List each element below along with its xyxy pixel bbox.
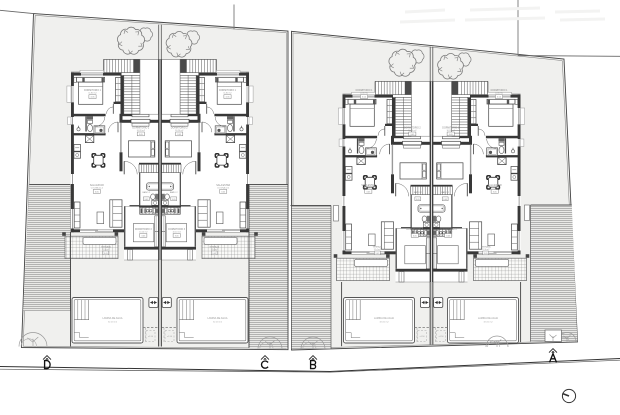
svg-text:12.4 m2: 12.4 m2 <box>374 249 382 251</box>
svg-text:SALA ESTAR: SALA ESTAR <box>90 184 104 187</box>
svg-text:±1.50: ±1.50 <box>167 336 173 338</box>
svg-text:10.10 m2: 10.10 m2 <box>139 231 148 233</box>
svg-text:10.20 m2: 10.20 m2 <box>447 130 456 132</box>
svg-text:COCINA 22.4: COCINA 22.4 <box>217 186 230 189</box>
svg-text:TERRAZA: TERRAZA <box>209 245 219 248</box>
svg-text:SALA ESTAR: SALA ESTAR <box>488 184 502 187</box>
svg-text:10.20 m2: 10.20 m2 <box>175 130 184 132</box>
svg-text:LAMINA DE AGUA: LAMINA DE AGUA <box>478 317 498 320</box>
svg-text:BAÑO 2: BAÑO 2 <box>441 191 449 194</box>
svg-text:12.4 m2: 12.4 m2 <box>211 249 219 251</box>
svg-text:TERRAZA: TERRAZA <box>481 245 491 248</box>
svg-text:32.00 m2: 32.00 m2 <box>213 322 223 324</box>
svg-text:10.10 m2: 10.10 m2 <box>173 231 182 233</box>
svg-text:32.00 m2: 32.00 m2 <box>483 322 493 324</box>
svg-text:11.80 m2: 11.80 m2 <box>223 93 232 95</box>
svg-text:COCINA 22.4: COCINA 22.4 <box>91 186 104 189</box>
svg-text:LAMINA DE AGUA: LAMINA DE AGUA <box>102 317 122 320</box>
svg-text:BAÑO 2: BAÑO 2 <box>414 191 422 194</box>
svg-text:±1.50: ±1.50 <box>148 336 154 338</box>
svg-text:TERRAZA: TERRAZA <box>101 245 111 248</box>
svg-text:12.4 m2: 12.4 m2 <box>102 249 110 251</box>
svg-text:BAÑO 2: BAÑO 2 <box>170 191 178 194</box>
svg-text:10.10 m2: 10.10 m2 <box>444 231 453 233</box>
svg-text:32.00 m2: 32.00 m2 <box>108 322 118 324</box>
svg-text:12.4 m2: 12.4 m2 <box>482 249 490 251</box>
svg-text:11.80 m2: 11.80 m2 <box>495 93 504 95</box>
svg-text:10.20 m2: 10.20 m2 <box>137 130 146 132</box>
svg-text:SALA ESTAR: SALA ESTAR <box>216 184 230 187</box>
svg-text:11.80 m2: 11.80 m2 <box>88 93 97 95</box>
svg-text:COCINA 22.4: COCINA 22.4 <box>362 186 375 189</box>
svg-text:TERRAZA: TERRAZA <box>372 245 382 248</box>
svg-text:32.00 m2: 32.00 m2 <box>379 322 389 324</box>
svg-text:±1.50: ±1.50 <box>420 336 426 338</box>
svg-text:10.20 m2: 10.20 m2 <box>408 130 417 132</box>
svg-text:LAMINA DE AGUA: LAMINA DE AGUA <box>207 317 227 320</box>
svg-text:SALA ESTAR: SALA ESTAR <box>361 184 375 187</box>
svg-text:COCINA 22.4: COCINA 22.4 <box>489 186 502 189</box>
svg-text:10.10 m2: 10.10 m2 <box>411 231 420 233</box>
svg-text:BAÑO 2: BAÑO 2 <box>142 191 150 194</box>
svg-text:LAMINA DE AGUA: LAMINA DE AGUA <box>374 317 394 320</box>
svg-text:11.80 m2: 11.80 m2 <box>360 93 369 95</box>
svg-text:±1.50: ±1.50 <box>439 336 445 338</box>
